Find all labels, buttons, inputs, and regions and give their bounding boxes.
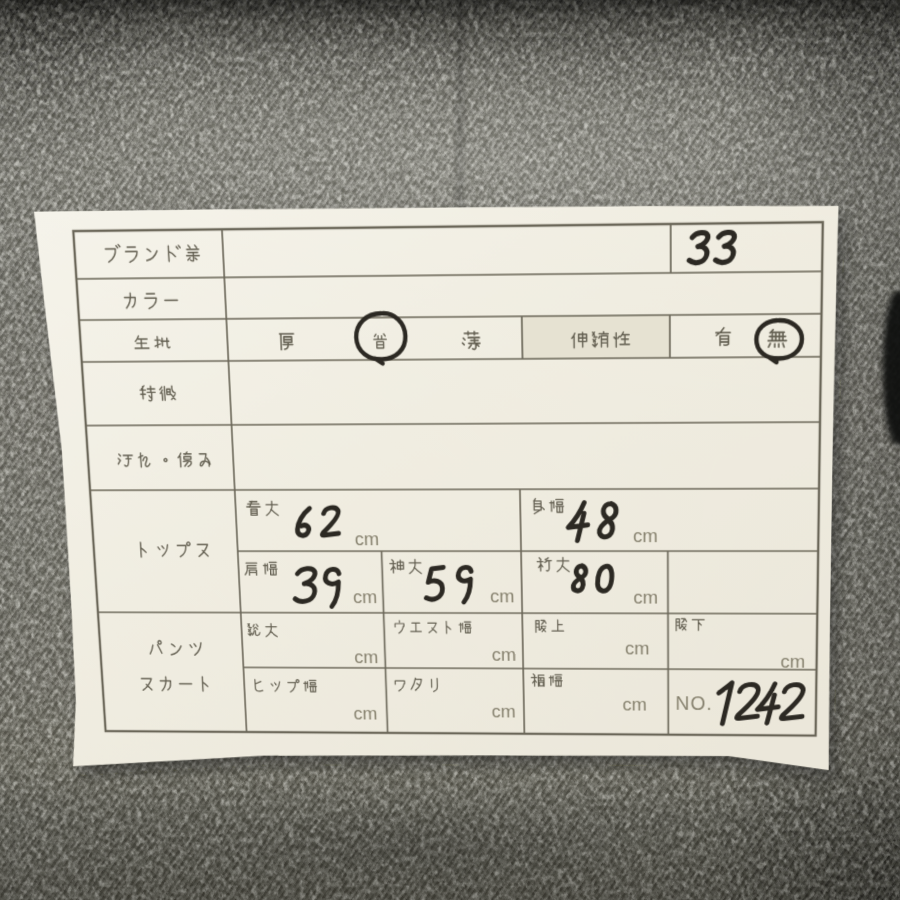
svg-text:cm: cm [633,587,658,608]
svg-text:cm: cm [353,587,378,608]
svg-text:cm: cm [354,529,379,550]
svg-text:cm: cm [625,639,650,660]
svg-text:cm: cm [492,645,517,666]
svg-text:cm: cm [353,704,378,725]
svg-text:cm: cm [633,526,658,547]
svg-text:cm: cm [780,651,805,672]
svg-text:NO.: NO. [675,693,712,715]
svg-text:cm: cm [491,702,516,723]
svg-text:cm: cm [622,695,646,716]
svg-text:cm: cm [490,586,515,607]
svg-text:cm: cm [354,647,379,668]
